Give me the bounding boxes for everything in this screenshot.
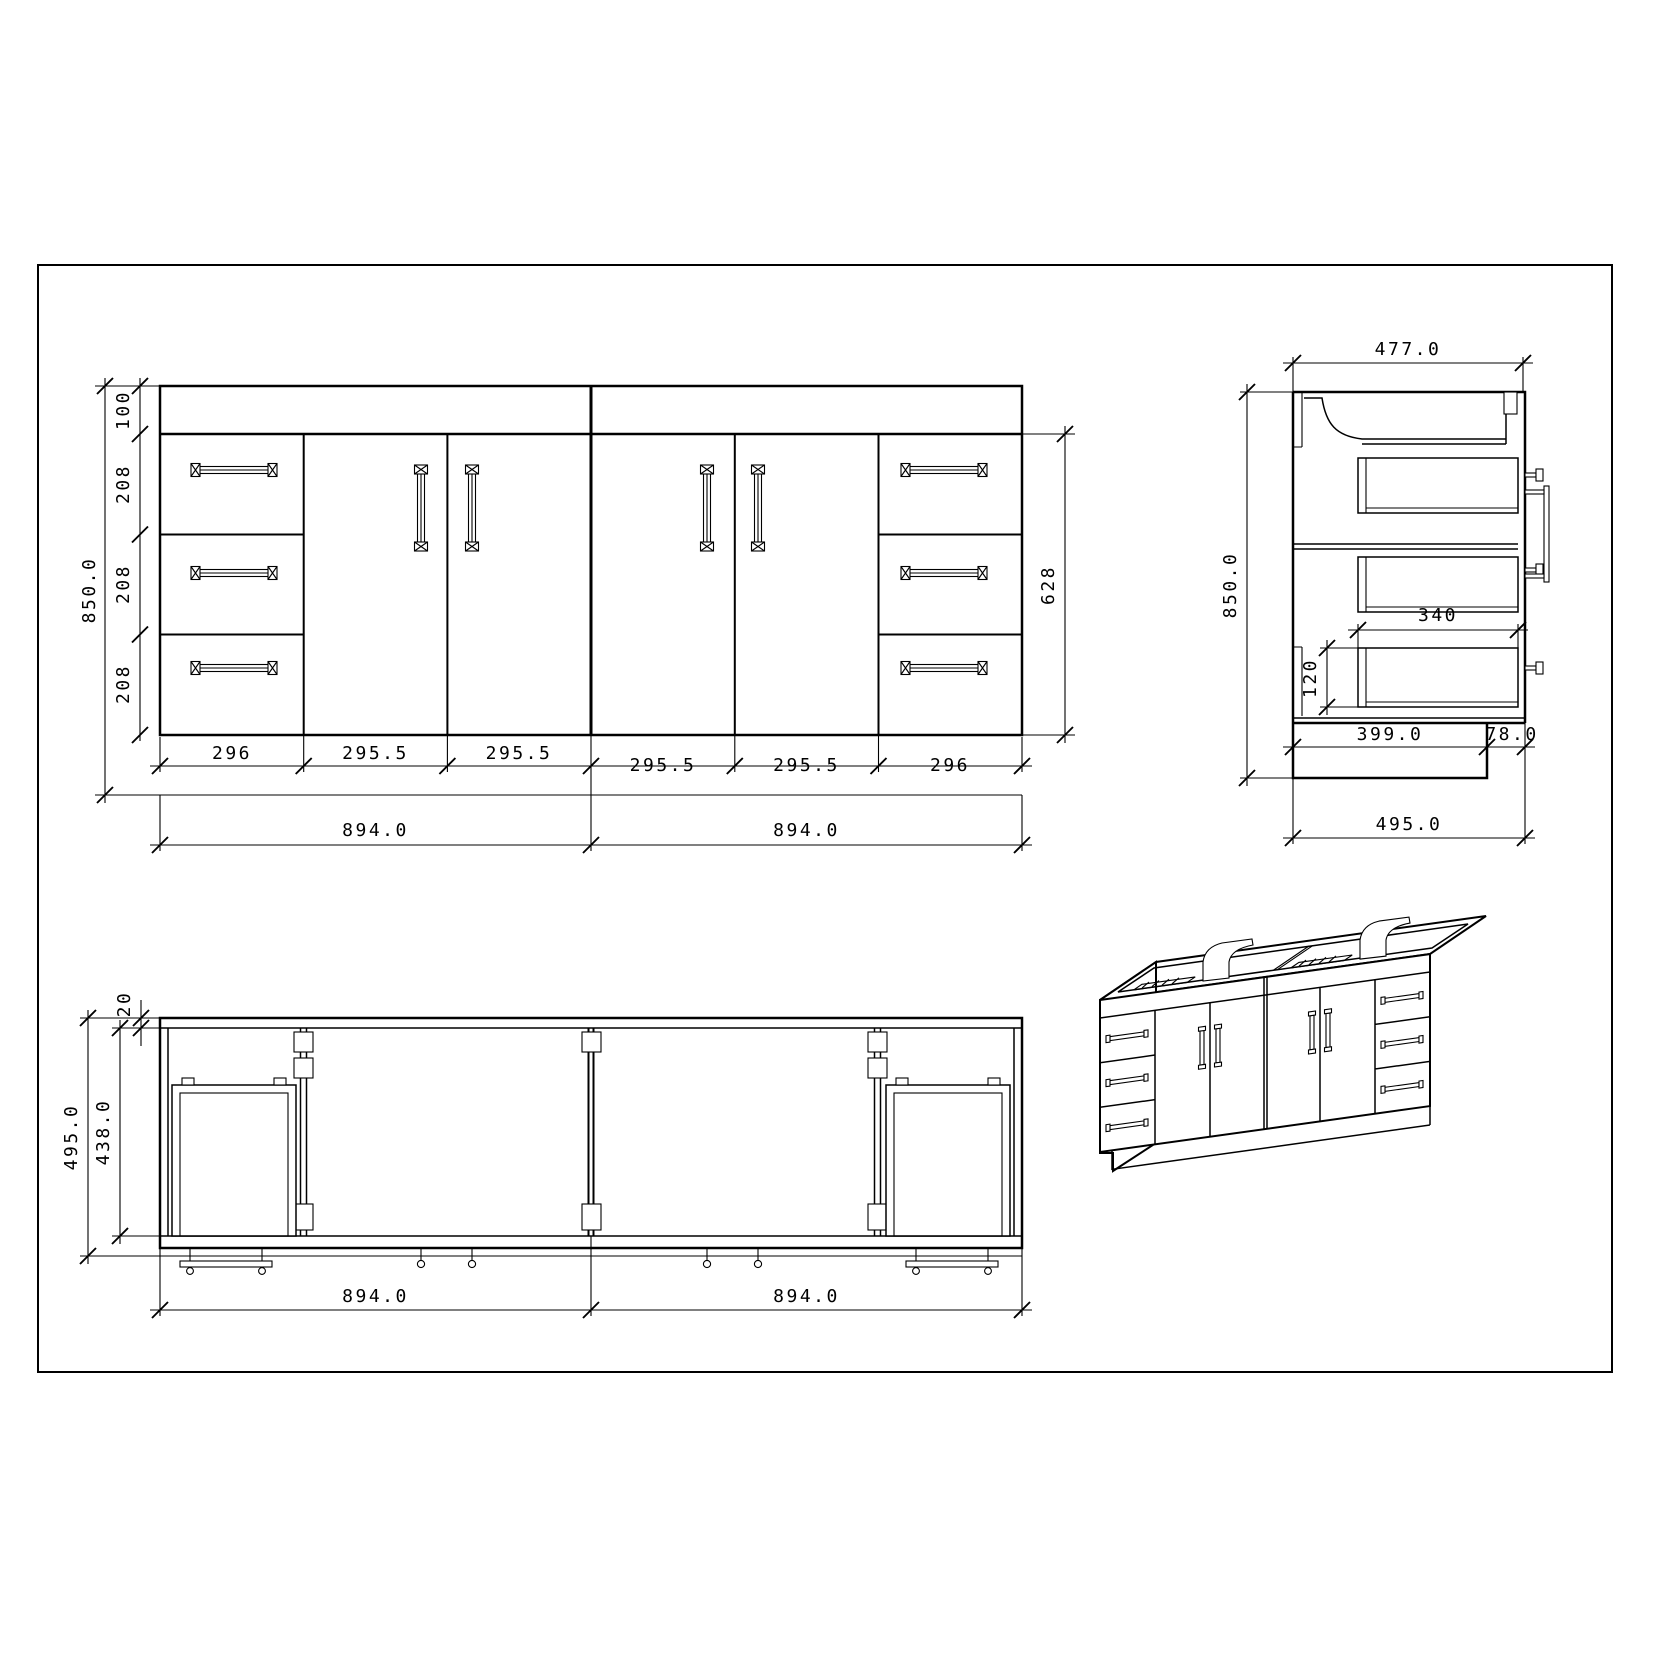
dim-front-width5: 295.5 bbox=[773, 755, 840, 776]
dim-side-height: 850.0 bbox=[1220, 552, 1241, 619]
plan-drawer-box bbox=[172, 1078, 296, 1236]
dim-plan-back-rail: 20 bbox=[114, 991, 135, 1018]
dim-front-width1: 296 bbox=[212, 743, 252, 764]
dim-plan-half2: 894.0 bbox=[773, 1286, 840, 1307]
dim-plan-inner-depth: 438.0 bbox=[93, 1099, 114, 1166]
dim-plan-overall-depth: 495.0 bbox=[61, 1104, 82, 1171]
drawer-handle-side-icon bbox=[1525, 469, 1543, 481]
dim-front-overall-height: 850.0 bbox=[79, 557, 100, 624]
drawer-handle-top-icon bbox=[906, 1248, 998, 1274]
dim-side-front-offset: 78.0 bbox=[1485, 724, 1538, 745]
dim-front-half2: 894.0 bbox=[773, 820, 840, 841]
dim-side-drawer-depth: 340 bbox=[1418, 605, 1458, 626]
dim-front-drawer1: 208 bbox=[113, 464, 134, 504]
dim-front-width2: 295.5 bbox=[342, 743, 409, 764]
front-elevation-view: 850.0 100 208 208 208 628 296 295.5 295.… bbox=[79, 378, 1075, 853]
dim-front-width3: 295.5 bbox=[486, 743, 553, 764]
side-section-view: 477.0 850.0 340 120 399.0 78.0 495.0 bbox=[1220, 339, 1549, 846]
dim-front-top-rail: 100 bbox=[113, 390, 134, 430]
dim-front-width6: 296 bbox=[930, 755, 970, 776]
cad-drawing: 850.0 100 208 208 208 628 296 295.5 295.… bbox=[0, 0, 1653, 1653]
dim-side-overall-depth: 495.0 bbox=[1376, 814, 1443, 835]
dim-plan-half1: 894.0 bbox=[342, 1286, 409, 1307]
isometric-view bbox=[1100, 916, 1486, 1171]
drawer-handle-top-icon bbox=[180, 1248, 272, 1274]
plan-view: 20 438.0 495.0 894.0 894.0 bbox=[61, 991, 1032, 1318]
dim-front-door-height: 628 bbox=[1038, 565, 1059, 605]
dim-side-top-depth: 477.0 bbox=[1375, 339, 1442, 360]
side-mid-rail bbox=[1293, 544, 1518, 549]
dim-front-half1: 894.0 bbox=[342, 820, 409, 841]
door-handle-top-icon bbox=[702, 1248, 712, 1268]
side-basin-profile bbox=[1304, 398, 1506, 444]
dim-side-drawer-height: 120 bbox=[1300, 658, 1321, 698]
side-drawer-box bbox=[1358, 557, 1518, 612]
door-handle-top-icon bbox=[753, 1248, 763, 1268]
side-drawer-box bbox=[1358, 648, 1518, 707]
dim-side-toe-depth: 399.0 bbox=[1357, 724, 1424, 745]
dim-front-drawer3: 208 bbox=[113, 664, 134, 704]
door-handle-top-icon bbox=[416, 1248, 426, 1268]
side-drawer-box bbox=[1358, 458, 1518, 513]
side-front-rail bbox=[1504, 392, 1517, 414]
plan-drawer-box bbox=[886, 1078, 1010, 1236]
dim-front-width4: 295.5 bbox=[630, 755, 697, 776]
cad-sheet: 850.0 100 208 208 208 628 296 295.5 295.… bbox=[0, 0, 1653, 1653]
dim-front-drawer2: 208 bbox=[113, 564, 134, 604]
door-handle-top-icon bbox=[467, 1248, 477, 1268]
drawer-handle-side-icon bbox=[1525, 662, 1543, 674]
